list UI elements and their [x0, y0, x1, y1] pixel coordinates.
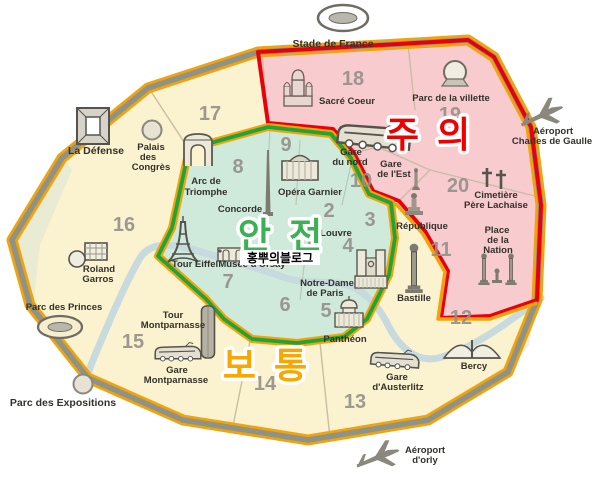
district-number-18: 18	[342, 68, 364, 90]
district-number-7: 7	[222, 271, 233, 293]
district-number-12: 12	[450, 307, 472, 329]
landmark-label-austerlitz-2: d'Austerlitz	[372, 382, 424, 393]
geode-icon	[442, 61, 468, 86]
landmark-label-bastille: Bastille	[397, 293, 431, 304]
zone-safe-label: 안 전	[238, 215, 326, 256]
watermark-label: 홍뿌의블로그	[247, 250, 313, 265]
district-number-17: 17	[199, 103, 221, 125]
landmark-label-congres-3: Congrès	[132, 162, 171, 173]
landmark-label-republique: République	[396, 221, 448, 232]
district-number-16: 16	[113, 214, 135, 236]
landmark-label-gare-du-nord-2: du nord	[332, 157, 368, 168]
map-canvas: 1 2 3 4 5 6 7 8 9 10 11 12 13 14 15 16 1…	[0, 0, 600, 477]
landmark-label-bercy: Bercy	[461, 361, 488, 372]
circle-venue-icon	[143, 121, 162, 140]
landmark-label-lachaise-2: Père Lachaise	[464, 200, 528, 211]
district-number-13: 13	[344, 391, 366, 413]
zone-normal-label: 보 통	[223, 345, 311, 386]
landmark-label-roland-garros-2: Garros	[82, 274, 113, 285]
landmark-label-sacre-coeur: Sacré Coeur	[319, 96, 375, 107]
landmark-label-arc-2: Triomphe	[185, 187, 228, 198]
district-number-15: 15	[122, 331, 144, 353]
district-number-9: 9	[280, 134, 291, 156]
landmark-label-la-defense: La Défense	[68, 145, 124, 157]
landmark-label-notre-dame-2: de Paris	[307, 288, 344, 299]
district-number-20: 20	[447, 175, 469, 197]
district-number-11: 11	[430, 239, 451, 261]
triumphal-arch-icon	[184, 134, 212, 166]
landmark-label-arc-1: Arc de	[191, 176, 221, 187]
zone-caution-label: 주 의	[386, 114, 474, 155]
landmark-label-cdg-2: Charles de Gaulle	[512, 136, 592, 147]
landmark-label-tour-eiffel: Tour Eiffel	[172, 259, 218, 270]
paris-safety-map: 1 2 3 4 5 6 7 8 9 10 11 12 13 14 15 16 1…	[0, 0, 600, 477]
stadium-icon	[38, 316, 82, 338]
landmark-label-nation-3: Nation	[483, 245, 513, 256]
landmark-label-stade-de-france: Stade de France	[292, 38, 373, 50]
landmark-label-opera: Opéra Garnier	[278, 187, 342, 198]
landmark-label-parc-expositions: Parc des Expositions	[10, 397, 116, 409]
landmark-label-gare-montparnasse-2: Montparnasse	[144, 375, 208, 386]
grande-arche-icon	[77, 108, 109, 144]
landmark-label-tour-montparnasse-2: Montparnasse	[141, 320, 205, 331]
landmark-label-gare-de-lest-2: de l'Est	[377, 169, 411, 180]
district-number-10: 10	[350, 170, 372, 192]
stadium-icon	[318, 5, 368, 31]
landmark-label-pantheon: Panthéon	[323, 334, 366, 345]
district-number-5: 5	[320, 300, 331, 322]
district-number-8: 8	[232, 156, 243, 178]
landmark-label-parc-princes: Parc des Princes	[26, 302, 103, 313]
district-number-6: 6	[279, 294, 290, 316]
airplane-icon	[352, 437, 402, 475]
circle-venue-icon	[74, 375, 93, 394]
landmark-label-orly-2: d'orly	[412, 455, 438, 466]
landmark-label-concorde: Concorde	[218, 204, 262, 215]
skyscraper-icon	[202, 306, 215, 358]
district-number-3: 3	[364, 209, 375, 231]
landmark-label-parc-villette: Parc de la villette	[412, 93, 490, 104]
